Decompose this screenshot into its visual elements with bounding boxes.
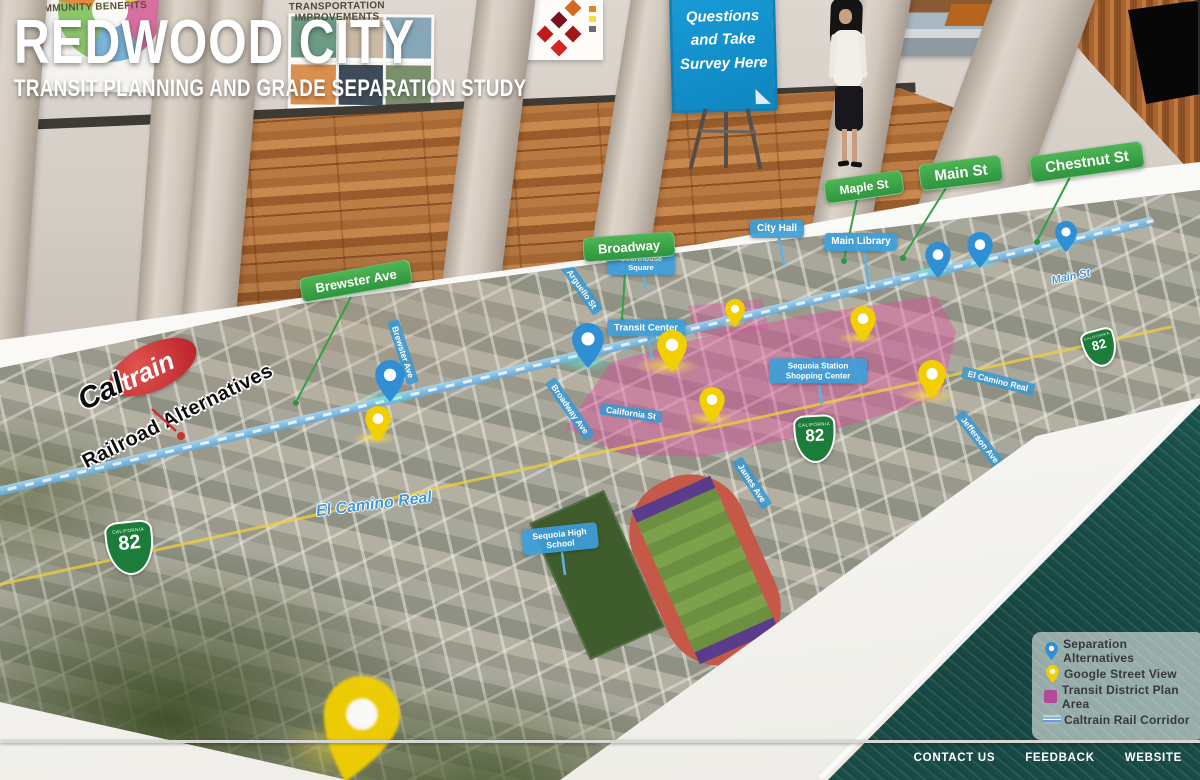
highway-82-shield-icon: CALIFORNIA 82 [793,414,837,464]
map-text-main-st: Main St [1051,267,1092,287]
street-view-pin[interactable] [918,360,946,399]
page-subtitle: TRANSIT PLANNING AND GRADE SEPARATION ST… [14,75,527,103]
map-street-label-el-camino: El Camino Real [961,366,1036,396]
map-legend: Separation Alternatives Google Street Vi… [1032,632,1200,740]
legend-row-separation: Separation Alternatives [1040,639,1196,662]
easel-leg [724,112,728,168]
survey-sign: Questions and Take Survey Here [668,0,778,113]
survey-sign-line1: Questions [672,4,773,30]
virtual-open-house-scene: COMMUNITY BENEFITS TRANSPORTATION IMPROV… [0,0,1200,780]
footer-link-feedback[interactable]: FEEDBACK [1025,752,1095,764]
highway-82-shield-icon: CALIFORNIA 82 [103,519,156,578]
footer-link-website[interactable]: WEBSITE [1125,752,1182,764]
street-view-pin[interactable] [657,330,687,372]
survey-sign-line3: Survey Here [673,50,774,76]
person-leg [852,129,857,163]
footer-nav: CONTACT US FEEDBACK WEBSITE [914,752,1182,764]
street-view-pin-icon [1040,665,1064,683]
map-street-label-arguello: Arguello St [561,262,604,316]
separation-alternatives-pin[interactable] [967,232,993,268]
highway-82-shield-icon: CALIFORNIA 82 [1079,325,1122,371]
separation-pin-icon [1040,642,1063,660]
football-field [632,476,779,664]
person-foot [851,161,862,167]
street-view-pin[interactable] [365,406,391,442]
legend-label: Transit District Plan Area [1062,683,1196,711]
legend-label: Google Street View [1064,667,1177,681]
separation-alternatives-pin[interactable] [375,360,405,402]
separation-alternatives-pin[interactable] [925,242,951,278]
map-street-label-jefferson: Jefferson Ave [954,410,1005,471]
person-leg [842,129,847,163]
zoning-legend-swatch [589,6,596,12]
map-text-el-camino-real: El Camino Real [315,489,433,521]
legend-label: Caltrain Rail Corridor [1064,713,1190,727]
district-square-icon [1040,690,1062,703]
place-label-main-library: Main Library [824,233,897,251]
place-label-sequoia-station: Sequoia Station Shopping Center [769,358,867,383]
separation-alternatives-pin[interactable] [572,323,604,368]
legend-row-district: Transit District Plan Area [1040,685,1196,708]
place-label-city-hall: City Hall [750,220,804,238]
shield-route-number: 82 [795,426,834,445]
person-face [839,9,852,24]
separation-alternatives-pin[interactable] [1055,221,1077,252]
legend-label: Separation Alternatives [1063,637,1196,665]
page-title: REDWOOD CITY [14,14,540,73]
rail-line-icon [1040,715,1064,724]
street-view-pin[interactable] [850,306,876,342]
page-header: REDWOOD CITY TRANSIT PLANNING AND GRADE … [14,14,671,103]
legend-row-rail: Caltrain Rail Corridor [1040,708,1196,731]
street-view-pin[interactable] [699,387,725,423]
footer-divider [0,740,1200,743]
sign-folded-corner-icon [755,89,770,104]
footer-link-contact-us[interactable]: CONTACT US [914,752,996,764]
person-skirt [835,86,863,131]
street-view-pin[interactable] [725,299,745,327]
survey-sign-line2: and Take [673,27,774,53]
